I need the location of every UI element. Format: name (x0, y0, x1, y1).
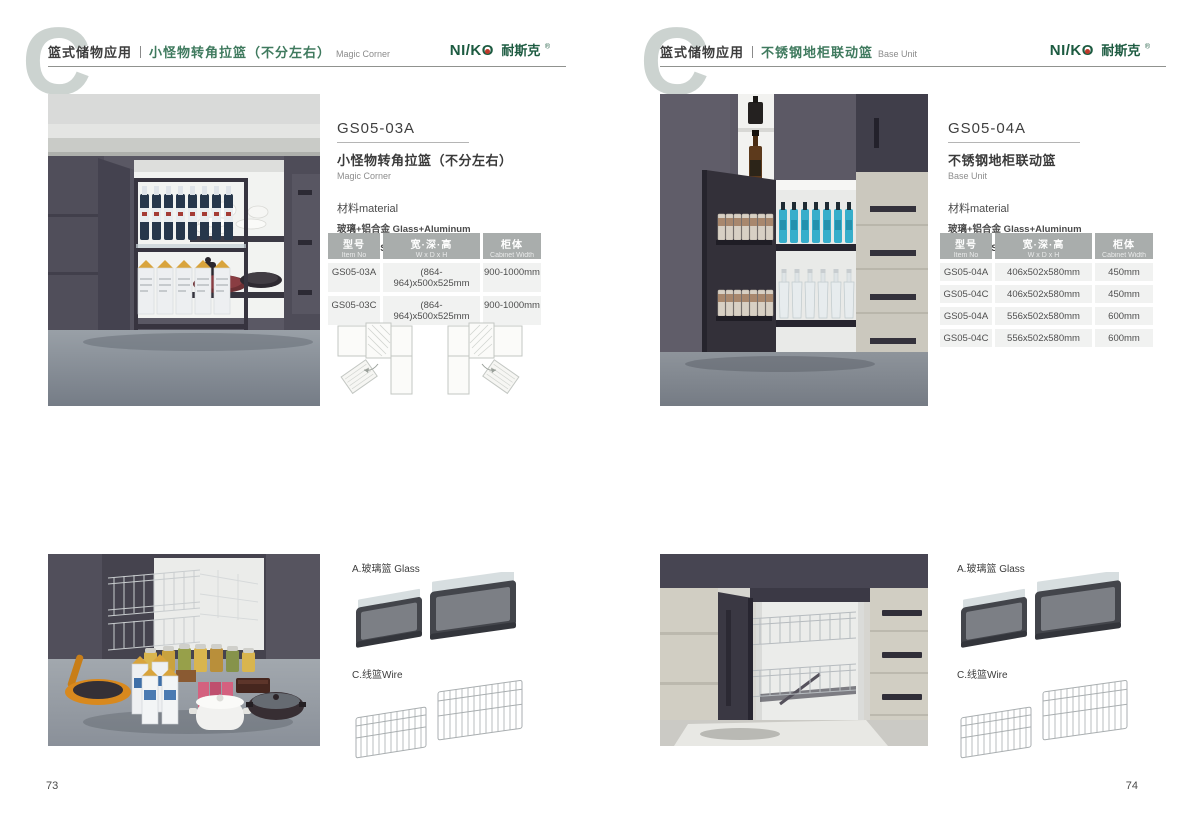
main-photo-magic-corner (48, 94, 320, 406)
col-header-model: 型号Item No (328, 233, 380, 259)
table-cell: 600mm (1095, 307, 1153, 325)
table-cell: 600mm (1095, 329, 1153, 347)
header-rule (660, 66, 1166, 67)
header-title-cn: 不锈钢地柜联动篮 (761, 42, 873, 61)
spec-table-header: 型号Item No 宽·深·高W x D x H 柜体Cabinet Width (940, 233, 1153, 259)
glass-basket-images (352, 572, 522, 656)
col-header-cabinet: 柜体Cabinet Width (483, 233, 541, 259)
product-name-en: Base Unit (948, 171, 1163, 181)
spec-table: 型号Item No 宽·深·高W x D x H 柜体Cabinet Width… (940, 233, 1153, 347)
table-cell: GS05-03A (328, 263, 380, 292)
table-cell: GS05-04C (940, 329, 992, 347)
table-cell: 406x502x580mm (995, 285, 1092, 303)
product-model: GS05-03A (337, 120, 469, 143)
wire-basket-images (955, 678, 1130, 764)
table-row: GS05-04A406x502x580mm450mm (940, 263, 1153, 281)
corner-diagram-right (442, 318, 526, 402)
table-cell: 900-1000mm (483, 263, 541, 292)
corner-install-diagrams (334, 318, 526, 402)
header-title-en: Base Unit (878, 49, 917, 59)
page-number: 74 (1126, 780, 1138, 792)
header-rule (48, 66, 566, 67)
photo-base-unit-open (660, 554, 928, 746)
catalog-page-left: C 篮式储物应用 小怪物转角拉篮（不分左右） Magic Corner NI/K… (0, 0, 600, 820)
table-cell: 450mm (1095, 263, 1153, 281)
col-header-size: 宽·深·高W x D x H (383, 233, 480, 259)
spec-table-body: GS05-03A(864-964)x500x525mm900-1000mmGS0… (328, 263, 541, 325)
spec-table-header: 型号Item No 宽·深·高W x D x H 柜体Cabinet Width (328, 233, 541, 259)
photo-corner-wire-baskets (48, 554, 320, 746)
material-label: 材料material (948, 200, 1163, 216)
table-cell: 556x502x580mm (995, 307, 1092, 325)
product-name-cn: 不锈钢地柜联动篮 (948, 150, 1163, 169)
page-number: 73 (46, 780, 58, 792)
table-row: GS05-04C406x502x580mm450mm (940, 285, 1153, 303)
glass-basket-images (957, 572, 1127, 656)
product-name-en: Magic Corner (337, 171, 552, 181)
table-row: GS05-04C556x502x580mm600mm (940, 329, 1153, 347)
brand-logo-latin: NI/KO (450, 42, 494, 59)
wire-basket-images (350, 678, 525, 764)
spec-table: 型号Item No 宽·深·高W x D x H 柜体Cabinet Width… (328, 233, 541, 325)
brand-logo-latin: NI/KO (1050, 42, 1094, 59)
table-cell: GS05-04C (940, 285, 992, 303)
header-title-en: Magic Corner (336, 49, 390, 59)
spec-table-body: GS05-04A406x502x580mm450mmGS05-04C406x50… (940, 263, 1153, 347)
col-header-cabinet: 柜体Cabinet Width (1095, 233, 1153, 259)
material-label: 材料material (337, 200, 552, 216)
header-divider (140, 46, 141, 58)
table-cell: (864-964)x500x525mm (383, 263, 480, 292)
header-divider (752, 46, 753, 58)
table-cell: GS05-04A (940, 263, 992, 281)
registered-mark: ® (1145, 44, 1150, 51)
header-category: 篮式储物应用 (660, 42, 744, 61)
table-row: GS05-04A556x502x580mm600mm (940, 307, 1153, 325)
product-name-cn: 小怪物转角拉篮（不分左右） (337, 150, 552, 169)
table-cell: 406x502x580mm (995, 263, 1092, 281)
product-model: GS05-04A (948, 120, 1080, 143)
table-cell: 556x502x580mm (995, 329, 1092, 347)
table-cell: GS05-04A (940, 307, 992, 325)
table-cell: 450mm (1095, 285, 1153, 303)
col-header-model: 型号Item No (940, 233, 992, 259)
brand-logo-cn: 耐斯克 (501, 43, 540, 58)
header-title-cn: 小怪物转角拉篮（不分左右） (149, 42, 331, 61)
main-photo-base-unit (660, 94, 928, 406)
corner-diagram-left (334, 318, 418, 402)
brand-logo: NI/KO 耐斯克 ® (450, 40, 550, 60)
header-category: 篮式储物应用 (48, 42, 132, 61)
registered-mark: ® (545, 44, 550, 51)
catalog-page-right: C 篮式储物应用 不锈钢地柜联动篮 Base Unit NI/KO 耐斯克 ® (600, 0, 1200, 820)
brand-logo: NI/KO 耐斯克 ® (1050, 40, 1150, 60)
col-header-size: 宽·深·高W x D x H (995, 233, 1092, 259)
brand-logo-cn: 耐斯克 (1101, 43, 1140, 58)
table-row: GS05-03A(864-964)x500x525mm900-1000mm (328, 263, 541, 292)
